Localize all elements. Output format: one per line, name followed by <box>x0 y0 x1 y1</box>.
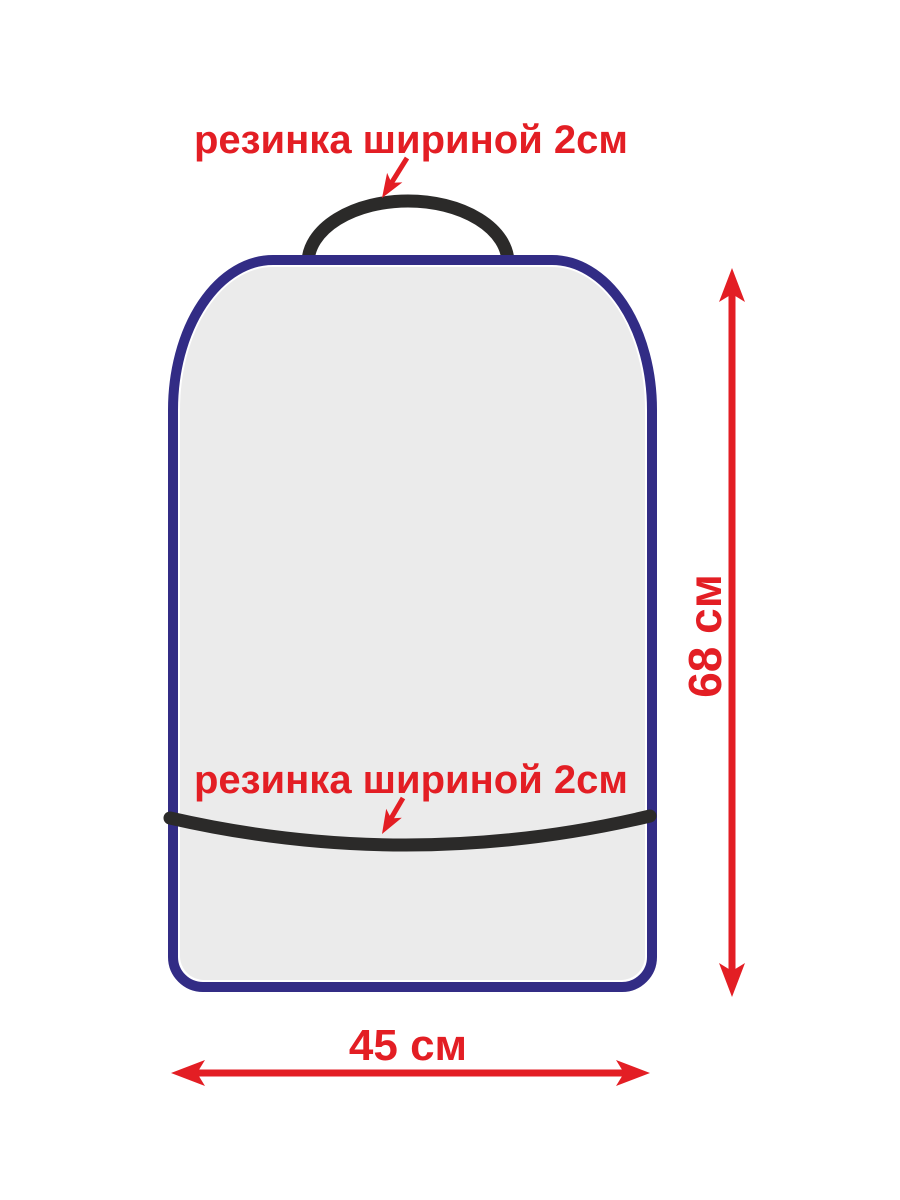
width-dimension-label: 45 см <box>349 1024 467 1068</box>
bottom-elastic-annotation: резинка шириной 2см <box>194 760 628 800</box>
height-dimension-label: 68 см <box>682 574 728 698</box>
seat-cover-dimension-diagram: резинка шириной 2см резинка шириной 2см … <box>0 0 900 1200</box>
top-elastic-annotation: резинка шириной 2см <box>194 120 628 160</box>
diagram-artwork <box>0 0 900 1200</box>
seat-cover-fabric <box>180 267 645 980</box>
